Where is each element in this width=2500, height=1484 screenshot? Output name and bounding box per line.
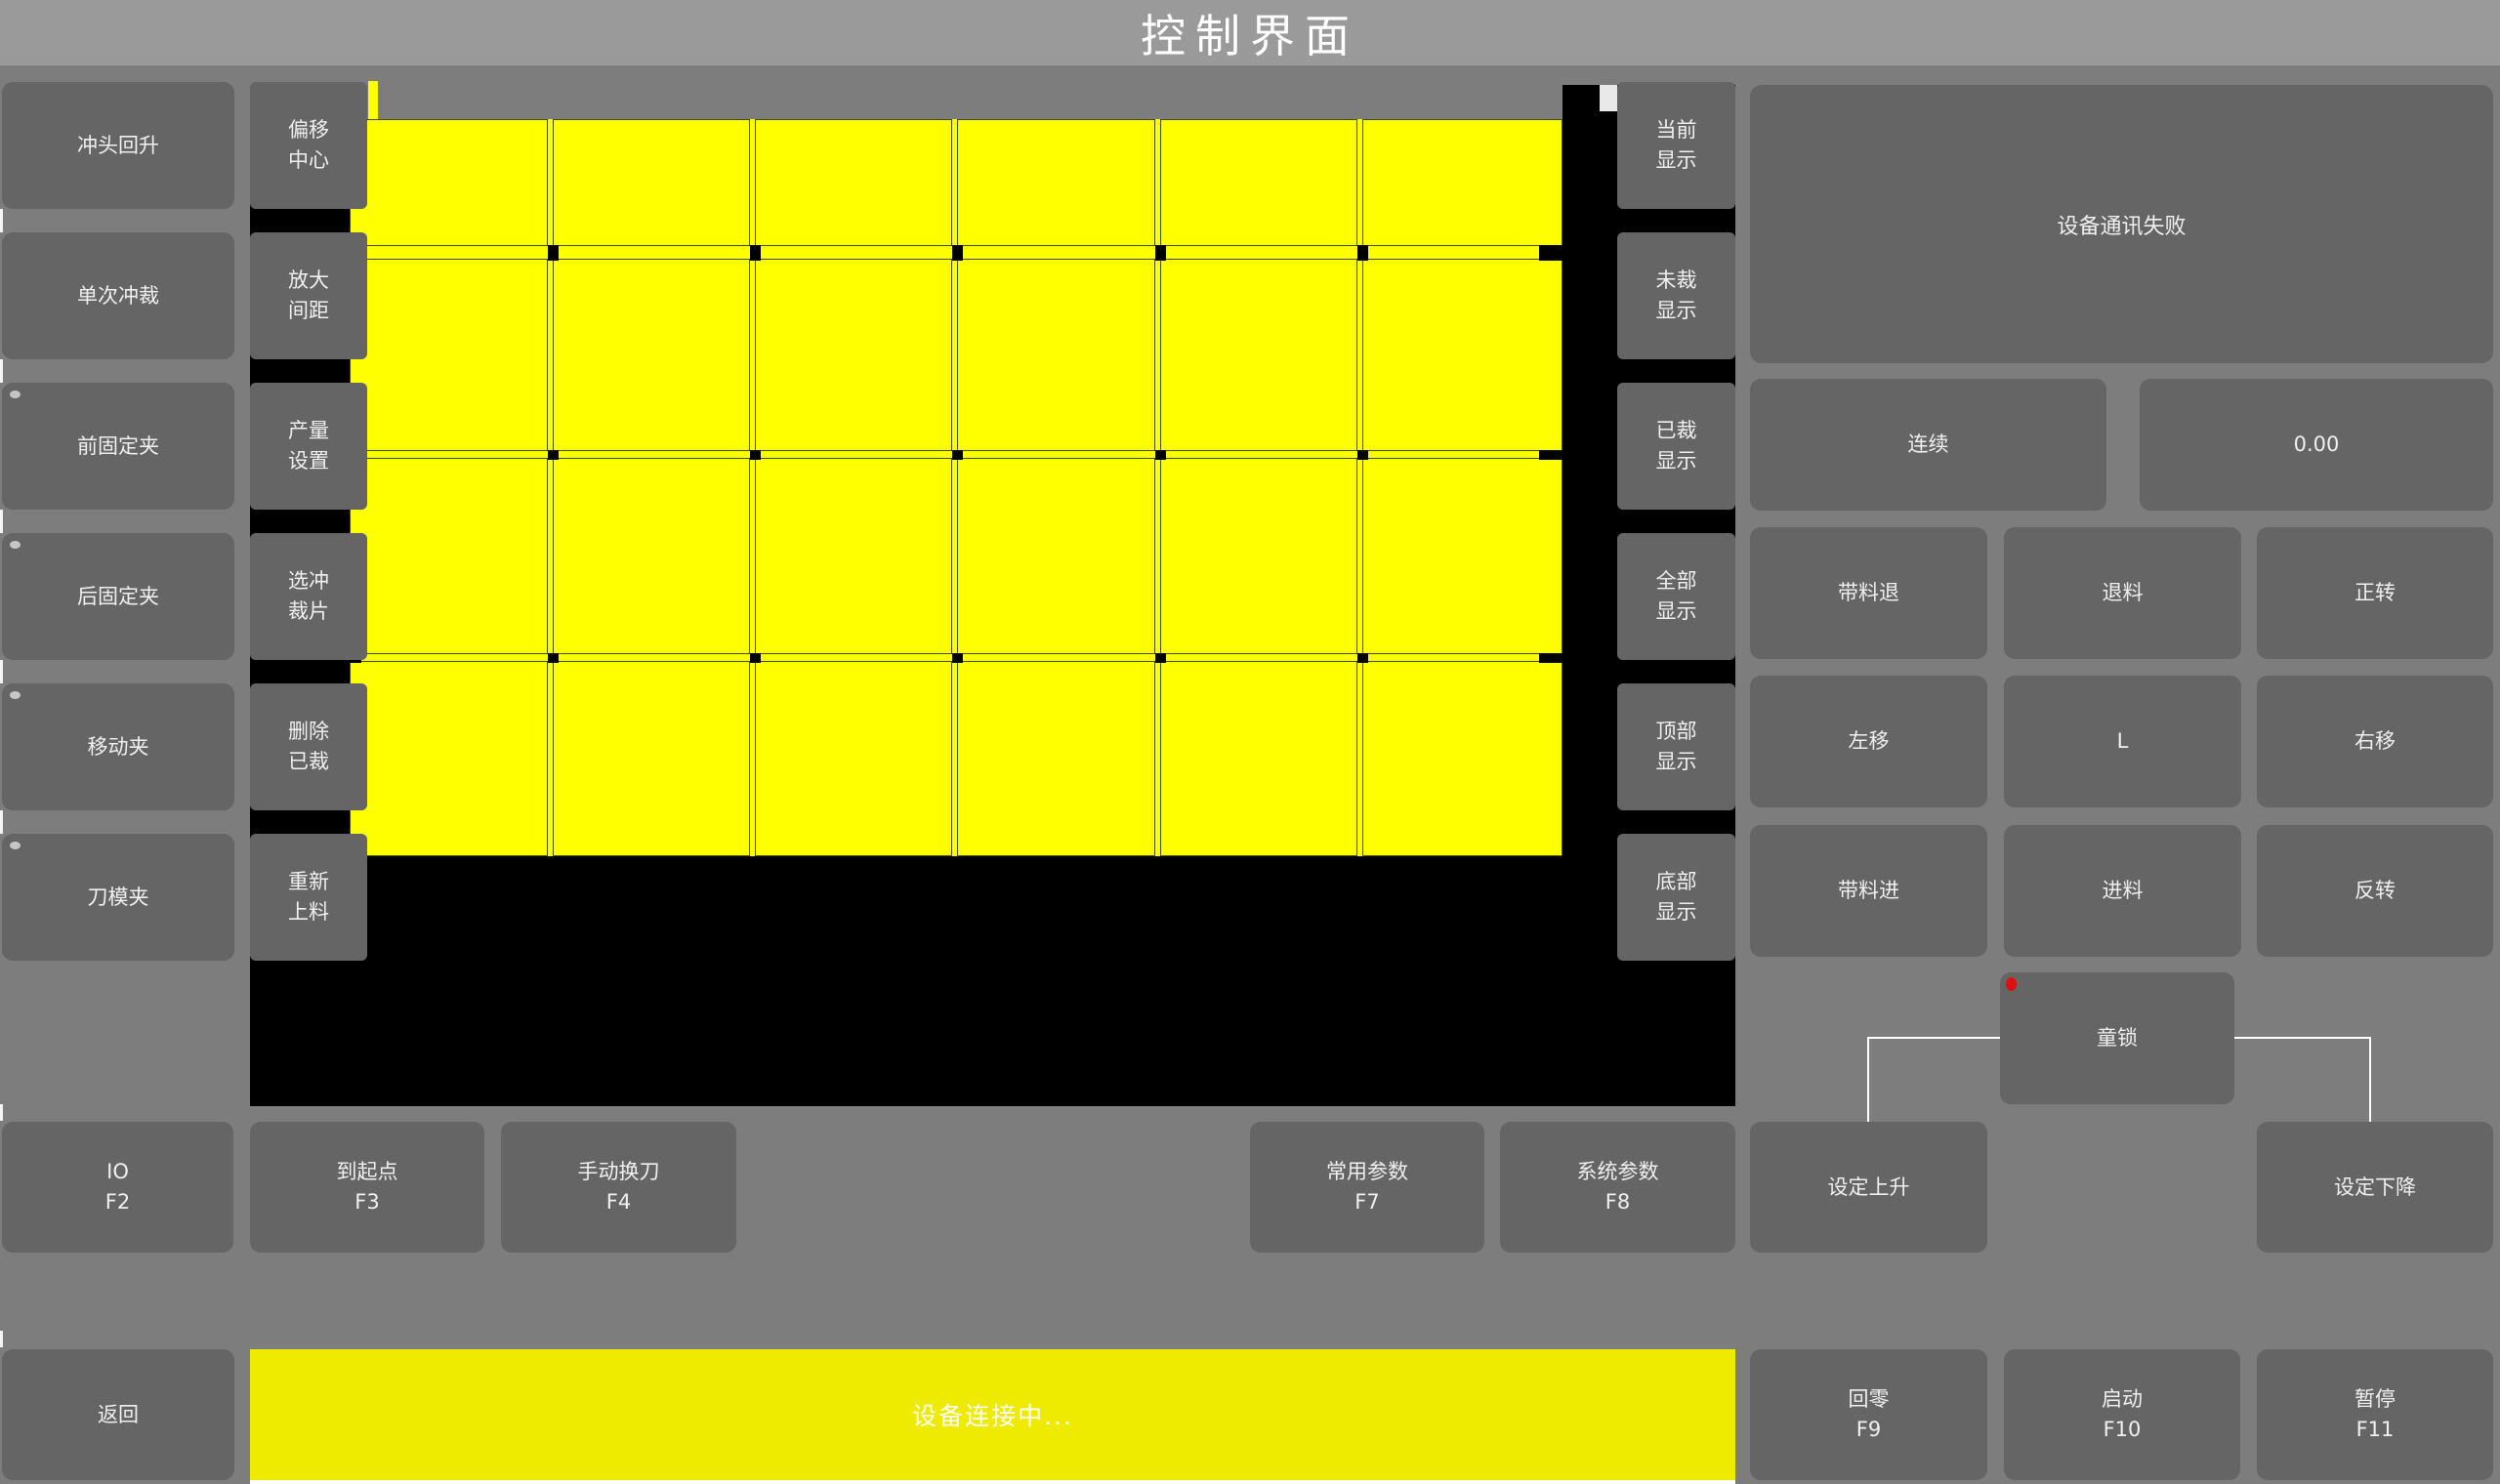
cut-piece[interactable]	[350, 119, 548, 246]
button-label: L	[2117, 726, 2129, 757]
button-label: 删除	[288, 717, 329, 747]
display-button-bottom[interactable]: 底部显示	[1617, 834, 1735, 961]
button-label: 后固定夹	[77, 582, 159, 612]
button-label: IO	[106, 1157, 129, 1187]
cut-notch	[548, 245, 559, 261]
cut-piece[interactable]	[350, 458, 548, 654]
button-label: 刀模夹	[88, 883, 149, 913]
status-message-box: 设备通讯失败	[1750, 85, 2493, 363]
button-label: 手动换刀	[578, 1157, 660, 1187]
button-label: 常用参数	[1326, 1157, 1408, 1187]
button-label: 选冲	[288, 566, 329, 597]
button-label: 左移	[1849, 726, 1890, 757]
indicator-dot	[10, 541, 21, 549]
jog-button-forward-rotate[interactable]: 正转	[2257, 527, 2493, 659]
cut-piece[interactable]	[755, 259, 952, 451]
cut-notch	[1357, 245, 1368, 261]
button-label: 显示	[1656, 747, 1697, 777]
sheet-layout-field	[350, 119, 1562, 856]
edge-tick	[0, 359, 3, 383]
function-button-to-origin[interactable]: 到起点F3	[250, 1122, 484, 1253]
fkey-label: F11	[2356, 1415, 2395, 1445]
status-bar-underline	[250, 1480, 1735, 1484]
button-label: 童锁	[2097, 1023, 2138, 1053]
cut-piece[interactable]	[1362, 119, 1562, 246]
jog-button-material-feed[interactable]: 带料进	[1750, 825, 1987, 957]
connector-line	[1867, 1037, 2000, 1039]
display-button-top[interactable]: 顶部显示	[1617, 683, 1735, 810]
edge-tick	[0, 810, 3, 834]
bottom-button-home[interactable]: 回零F9	[1750, 1349, 1987, 1480]
display-button-uncut[interactable]: 未裁显示	[1617, 232, 1735, 359]
edge-tick	[0, 1331, 3, 1347]
button-label: 放大	[288, 266, 329, 296]
button-label: 带料退	[1838, 578, 1899, 608]
button-label: 间距	[288, 296, 329, 326]
button-label: 启动	[2102, 1384, 2143, 1415]
button-label: 设定上升	[1828, 1173, 1910, 1203]
canvas-marker-yellow	[368, 81, 378, 119]
cut-piece[interactable]	[1362, 259, 1562, 451]
sidebar-button-punch-up[interactable]: 冲头回升	[2, 82, 234, 209]
tool-button-select-pieces[interactable]: 选冲裁片	[250, 533, 367, 660]
button-label: 已裁	[1656, 416, 1697, 446]
cut-notch	[750, 653, 761, 663]
jog-button-material-back[interactable]: 带料退	[1750, 527, 1987, 659]
tool-button-reload-material[interactable]: 重新上料	[250, 834, 367, 961]
sidebar-button-single-punch[interactable]: 单次冲裁	[2, 232, 234, 359]
fkey-label: F9	[1856, 1415, 1881, 1445]
cut-piece[interactable]	[1160, 661, 1357, 856]
button-label: 上料	[288, 897, 329, 927]
button-label: 设置	[288, 446, 329, 476]
display-button-cut[interactable]: 已裁显示	[1617, 383, 1735, 510]
cut-notch	[952, 653, 963, 663]
jog-button-move-right[interactable]: 右移	[2257, 676, 2493, 807]
button-label: 移动夹	[88, 732, 149, 763]
button-label: 重新	[288, 867, 329, 897]
function-button-set-rise[interactable]: 设定上升	[1750, 1122, 1987, 1253]
jog-button-feed[interactable]: 进料	[2004, 825, 2241, 957]
jog-button-unload[interactable]: 退料	[2004, 527, 2241, 659]
cut-piece[interactable]	[957, 119, 1155, 246]
button-label: 系统参数	[1577, 1157, 1659, 1187]
button-label: 正转	[2354, 578, 2396, 608]
button-label: 显示	[1656, 446, 1697, 476]
button-label: 暂停	[2354, 1384, 2396, 1415]
tool-button-enlarge-spacing[interactable]: 放大间距	[250, 232, 367, 359]
button-label: 显示	[1656, 597, 1697, 627]
fkey-label: F10	[2104, 1415, 2142, 1445]
tool-button-delete-cut[interactable]: 删除已裁	[250, 683, 367, 810]
button-label: 连续	[1908, 430, 1949, 460]
fkey-label: F7	[1354, 1187, 1379, 1217]
cut-notch	[1357, 450, 1368, 460]
sidebar-button-moving-clamp[interactable]: 移动夹	[2, 683, 234, 810]
indicator-dot	[10, 391, 21, 398]
cut-piece[interactable]	[350, 661, 548, 856]
cut-piece[interactable]	[1362, 661, 1562, 856]
cut-notch	[1539, 450, 1562, 460]
cut-notch	[548, 653, 559, 663]
cut-piece[interactable]	[1160, 119, 1357, 246]
back-button[interactable]: 返回	[2, 1349, 234, 1480]
cut-notch	[1155, 450, 1166, 460]
cut-piece[interactable]	[957, 259, 1155, 451]
edge-tick	[0, 1104, 3, 1121]
button-label: 单次冲裁	[77, 281, 159, 311]
indicator-dot	[10, 691, 21, 699]
jog-button-reverse-rotate[interactable]: 反转	[2257, 825, 2493, 957]
button-label: 反转	[2354, 876, 2396, 906]
button-label: 返回	[98, 1400, 139, 1430]
connector-line	[1867, 1037, 1869, 1122]
button-label: 底部	[1656, 867, 1697, 897]
fkey-label: F2	[105, 1187, 130, 1217]
cut-piece[interactable]	[755, 661, 952, 856]
edge-tick	[0, 660, 3, 683]
edge-tick	[0, 510, 3, 533]
value-display: 0.00	[2140, 379, 2493, 511]
button-label: 已裁	[288, 747, 329, 777]
cut-notch	[1155, 245, 1166, 261]
cut-notch	[548, 450, 559, 460]
title-bar: 控制界面	[0, 0, 2500, 65]
fkey-label: F8	[1605, 1187, 1630, 1217]
function-button-io[interactable]: IOF2	[2, 1122, 233, 1253]
fkey-label: F3	[354, 1187, 379, 1217]
button-label: 显示	[1656, 145, 1697, 176]
cut-piece[interactable]	[1160, 458, 1357, 654]
button-label: 偏移	[288, 115, 329, 145]
page-title: 控制界面	[1141, 1, 1359, 65]
cut-piece[interactable]	[553, 458, 750, 654]
display-button-current[interactable]: 当前显示	[1617, 82, 1735, 209]
bottom-button-start[interactable]: 启动F10	[2004, 1349, 2240, 1480]
jog-button-l[interactable]: L	[2004, 676, 2241, 807]
connection-status-text: 设备连接中...	[912, 1397, 1073, 1432]
button-label: 回零	[1849, 1384, 1890, 1415]
indicator-dot	[10, 842, 21, 849]
sidebar-button-rear-clamp[interactable]: 后固定夹	[2, 533, 234, 660]
cut-notch	[1155, 653, 1166, 663]
comm-status-text: 设备通讯失败	[2057, 209, 2186, 240]
function-button-manual-toolchange[interactable]: 手动换刀F4	[501, 1122, 736, 1253]
tool-button-output-settings[interactable]: 产量设置	[250, 383, 367, 510]
button-label: 进料	[2103, 876, 2144, 906]
cut-piece[interactable]	[350, 259, 548, 451]
button-label: 未裁	[1656, 266, 1697, 296]
button-label: 裁片	[288, 597, 329, 627]
cut-piece[interactable]	[755, 458, 952, 654]
cut-piece[interactable]	[1362, 458, 1562, 654]
cut-piece[interactable]	[553, 119, 750, 246]
tool-button-offset-center[interactable]: 偏移中心	[250, 82, 367, 209]
cut-piece[interactable]	[553, 661, 750, 856]
cut-piece[interactable]	[957, 458, 1155, 654]
bottom-button-pause[interactable]: 暂停F11	[2257, 1349, 2493, 1480]
button-label: 产量	[288, 416, 329, 446]
function-button-system-params[interactable]: 系统参数F8	[1500, 1122, 1735, 1253]
button-label: 右移	[2354, 726, 2396, 757]
cut-notch	[952, 245, 963, 261]
connection-status-bar: 设备连接中...	[250, 1349, 1735, 1480]
cut-notch	[1357, 653, 1368, 663]
canvas-marker-white	[1600, 85, 1617, 111]
cut-notch	[750, 450, 761, 460]
button-label: 设定下降	[2334, 1173, 2416, 1203]
button-label: 退料	[2103, 578, 2144, 608]
button-label: 前固定夹	[77, 432, 159, 462]
display-button-all[interactable]: 全部显示	[1617, 533, 1735, 660]
cut-notch	[1539, 245, 1562, 261]
cut-piece[interactable]	[755, 119, 952, 246]
button-label: 中心	[288, 145, 329, 176]
cut-piece[interactable]	[957, 661, 1155, 856]
jog-button-move-left[interactable]: 左移	[1750, 676, 1987, 807]
button-label: 显示	[1656, 897, 1697, 927]
fkey-label: F4	[606, 1187, 631, 1217]
alert-dot-icon	[2006, 977, 2017, 991]
cut-piece[interactable]	[553, 259, 750, 451]
edge-tick	[0, 209, 3, 232]
mode-button-continuous[interactable]: 连续	[1750, 379, 2106, 511]
cut-notch	[952, 450, 963, 460]
button-label: 带料进	[1838, 876, 1899, 906]
button-label: 顶部	[1656, 717, 1697, 747]
value-text: 0.00	[2294, 430, 2340, 460]
cut-notch	[750, 245, 761, 261]
function-button-common-params[interactable]: 常用参数F7	[1250, 1122, 1484, 1253]
connector-line	[2234, 1037, 2369, 1039]
child-lock-button[interactable]: 童锁	[2000, 972, 2234, 1104]
cut-piece[interactable]	[1160, 259, 1357, 451]
cut-notch	[1539, 653, 1562, 663]
button-label: 冲头回升	[77, 131, 159, 161]
function-button-set-lower[interactable]: 设定下降	[2257, 1122, 2493, 1253]
sidebar-button-front-clamp[interactable]: 前固定夹	[2, 383, 234, 510]
button-label: 显示	[1656, 296, 1697, 326]
sidebar-button-die-clamp[interactable]: 刀模夹	[2, 834, 234, 961]
button-label: 全部	[1656, 566, 1697, 597]
button-label: 当前	[1656, 115, 1697, 145]
button-label: 到起点	[337, 1157, 398, 1187]
connector-line	[2369, 1037, 2371, 1122]
